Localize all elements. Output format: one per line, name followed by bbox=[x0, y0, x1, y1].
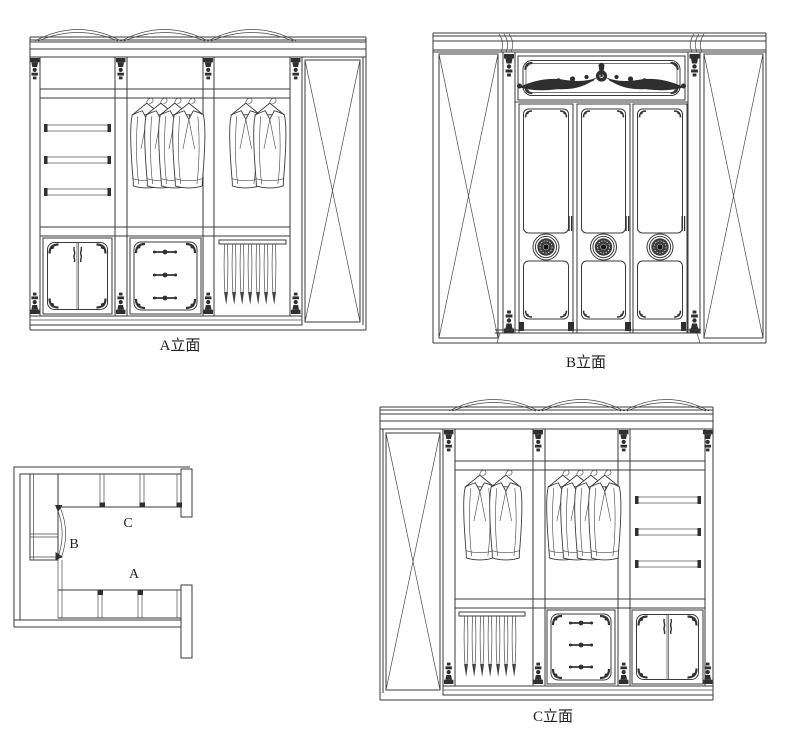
carved-crest-panel bbox=[517, 56, 686, 100]
hanging-column-2 bbox=[230, 98, 286, 188]
arch-left bbox=[35, 30, 121, 42]
right-shoulder-curves bbox=[690, 34, 704, 52]
door-handle bbox=[671, 619, 672, 634]
pilaster-base bbox=[30, 293, 40, 314]
plan-unit-c bbox=[58, 474, 182, 508]
door-handle bbox=[682, 216, 683, 231]
plinth bbox=[380, 686, 713, 700]
rosette-icon bbox=[647, 234, 673, 260]
center-stiles bbox=[503, 52, 700, 333]
mirror-panel-upper bbox=[582, 109, 626, 233]
rosette-icon bbox=[533, 234, 559, 260]
elevation-c: C立面 bbox=[380, 400, 713, 726]
x-brace-panel bbox=[386, 433, 440, 690]
three-drawer-chest bbox=[130, 238, 201, 314]
arch-left bbox=[449, 400, 539, 412]
door-handle bbox=[81, 247, 82, 262]
arch-middle bbox=[539, 400, 624, 412]
shelf-column bbox=[44, 124, 111, 196]
arch-right bbox=[624, 400, 709, 412]
pilaster-capital bbox=[30, 58, 40, 79]
mirror-panel-lower bbox=[582, 261, 626, 319]
pilaster-base bbox=[703, 663, 713, 684]
pilaster-capital bbox=[291, 58, 301, 79]
mirror-panel-upper bbox=[638, 109, 683, 233]
mirror-panel-lower bbox=[638, 261, 683, 319]
plan-corner-connector bbox=[55, 505, 66, 590]
plan-wall-return-top bbox=[181, 469, 192, 517]
three-drawer-chest bbox=[547, 610, 615, 684]
x-side-panel-left bbox=[439, 54, 498, 338]
elevation-a: A立面 bbox=[30, 30, 366, 355]
carved-shelf-band-upper bbox=[40, 89, 290, 98]
cornice-band bbox=[433, 41, 766, 50]
mirror-door-2 bbox=[577, 104, 630, 333]
hanging-column bbox=[131, 98, 205, 188]
drawing-svg: A立面 bbox=[0, 0, 800, 746]
elevation-b-label: B立面 bbox=[566, 354, 606, 371]
carved-shelf-band-lower bbox=[40, 227, 290, 236]
plinth bbox=[30, 316, 366, 330]
mirror-door-3 bbox=[633, 104, 687, 333]
stile-capital bbox=[690, 54, 700, 77]
pilaster-base bbox=[619, 663, 629, 684]
door-handle bbox=[664, 619, 665, 634]
plan-unit-a bbox=[58, 590, 181, 618]
pilaster-base bbox=[116, 293, 126, 314]
plan-bottom-wall bbox=[14, 620, 181, 627]
two-door-cabinet bbox=[632, 610, 703, 684]
pilaster-capital bbox=[116, 58, 126, 79]
garment-icon bbox=[490, 470, 522, 560]
plan-label-a: A bbox=[129, 567, 140, 582]
door-handle bbox=[569, 216, 570, 231]
trouser-rack bbox=[219, 240, 286, 305]
plan-wall-return-bottom bbox=[181, 585, 192, 658]
arch-middle bbox=[121, 30, 208, 42]
plan-inner-wall bbox=[20, 474, 190, 620]
pilaster-capital bbox=[703, 430, 713, 451]
door-handle bbox=[626, 216, 627, 231]
pilaster-base bbox=[533, 663, 543, 684]
pilaster-capital bbox=[619, 430, 629, 451]
garment-icon bbox=[254, 98, 286, 188]
pilaster-base bbox=[203, 293, 213, 314]
pilaster-capital bbox=[533, 430, 543, 451]
rosette-icon bbox=[591, 234, 617, 260]
pilaster-capital bbox=[444, 430, 454, 451]
pilaster-base bbox=[291, 293, 301, 314]
pilaster-capital bbox=[203, 58, 213, 79]
hanging-column-2 bbox=[464, 470, 522, 560]
plan-label-c: C bbox=[123, 516, 132, 531]
elevation-a-cornice bbox=[30, 30, 366, 58]
garment-icon bbox=[173, 98, 205, 188]
carved-shelf-band-lower bbox=[455, 599, 705, 608]
mirror-panel-upper bbox=[524, 109, 569, 233]
wardrobe-technical-drawing: A立面 bbox=[0, 0, 800, 746]
pilaster-base bbox=[444, 663, 454, 684]
left-shoulder-curves bbox=[499, 34, 513, 52]
plan-label-b: B bbox=[69, 537, 78, 552]
carved-shelf-band-upper bbox=[455, 461, 705, 470]
two-door-cabinet bbox=[43, 238, 112, 314]
elevation-b: B立面 bbox=[433, 33, 766, 371]
mirror-panel-lower bbox=[524, 261, 569, 319]
hanging-column bbox=[547, 470, 621, 560]
garment-icon bbox=[589, 470, 621, 560]
x-brace-panel bbox=[305, 60, 360, 322]
elevation-a-label: A立面 bbox=[160, 337, 201, 354]
arch-right bbox=[208, 30, 296, 42]
mirror-door-1 bbox=[519, 104, 573, 333]
trouser-rack bbox=[459, 612, 525, 677]
elevation-c-label: C立面 bbox=[533, 708, 573, 725]
door-handle bbox=[74, 247, 75, 262]
shelf-column bbox=[635, 496, 701, 568]
stile-capital bbox=[504, 54, 514, 77]
elevation-c-cornice bbox=[380, 400, 713, 430]
plinth-b bbox=[433, 322, 766, 343]
carved-crest-icon bbox=[517, 63, 686, 90]
x-side-panel-right bbox=[704, 54, 763, 338]
plan-unit-b bbox=[30, 474, 58, 560]
floor-plan: C B A bbox=[14, 467, 192, 658]
